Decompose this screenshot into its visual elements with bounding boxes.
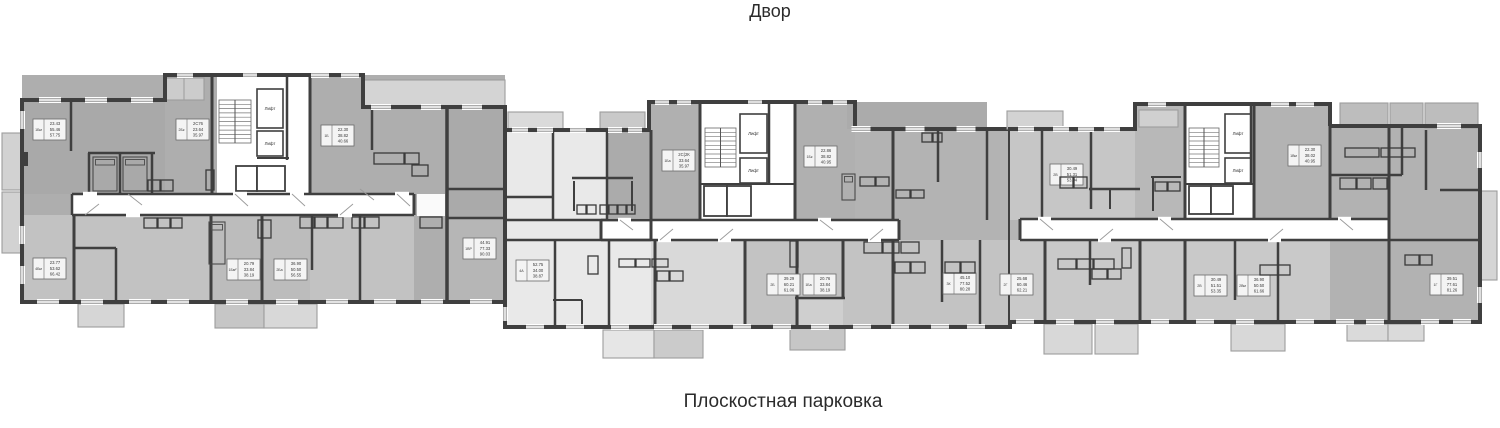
svg-text:25.68: 25.68 xyxy=(1017,276,1028,281)
svg-text:53.04: 53.04 xyxy=(1067,178,1078,183)
svg-text:1Ба: 1Ба xyxy=(664,159,670,163)
svg-text:36.90: 36.90 xyxy=(291,261,302,266)
svg-text:Лифт: Лифт xyxy=(265,106,276,111)
svg-text:1Вм: 1Вм xyxy=(1290,154,1297,158)
svg-text:61.66: 61.66 xyxy=(1254,289,1265,294)
svg-text:33.84: 33.84 xyxy=(244,267,255,272)
svg-text:52.75: 52.75 xyxy=(533,262,544,267)
svg-text:77.52: 77.52 xyxy=(960,281,971,286)
svg-text:56.55: 56.55 xyxy=(291,273,302,278)
svg-text:60.21: 60.21 xyxy=(784,282,795,287)
svg-text:2Б: 2Б xyxy=(770,283,775,287)
svg-text:1Бк: 1Бк xyxy=(807,155,813,159)
svg-text:Лифт: Лифт xyxy=(265,141,276,146)
svg-text:51.51: 51.51 xyxy=(1211,283,1222,288)
svg-text:1Г: 1Г xyxy=(1434,283,1438,287)
svg-text:35.97: 35.97 xyxy=(193,133,204,138)
svg-text:2Ба: 2Ба xyxy=(276,268,282,272)
svg-text:22.30: 22.30 xyxy=(1305,147,1316,152)
svg-text:57.75: 57.75 xyxy=(50,133,61,138)
svg-text:55.46: 55.46 xyxy=(50,127,61,132)
svg-text:1Ба: 1Ба xyxy=(805,283,811,287)
svg-text:2Вм: 2Вм xyxy=(1239,284,1246,288)
svg-text:Лифт: Лифт xyxy=(1233,168,1244,173)
svg-text:77.61: 77.61 xyxy=(1447,282,1458,287)
svg-text:50.50: 50.50 xyxy=(1254,283,1265,288)
svg-text:62.21: 62.21 xyxy=(1017,288,1028,293)
svg-text:38.02: 38.02 xyxy=(1305,153,1316,158)
svg-text:40.95: 40.95 xyxy=(821,160,832,165)
svg-text:45.10: 45.10 xyxy=(960,275,971,280)
svg-text:39.29: 39.29 xyxy=(784,276,795,281)
svg-text:1Б: 1Б xyxy=(324,134,329,138)
svg-text:33.84: 33.84 xyxy=(820,282,831,287)
svg-text:4Бм: 4Бм xyxy=(35,267,42,271)
svg-text:53.62: 53.62 xyxy=(50,266,61,271)
svg-text:61.06: 61.06 xyxy=(784,288,795,293)
svg-text:66.42: 66.42 xyxy=(50,272,61,277)
svg-text:22.30: 22.30 xyxy=(338,127,349,132)
svg-text:23.64: 23.64 xyxy=(193,127,204,132)
svg-text:33.64: 33.64 xyxy=(679,158,690,163)
svg-text:Лифт: Лифт xyxy=(748,168,759,173)
svg-text:1ВР: 1ВР xyxy=(465,247,472,251)
svg-text:22.86: 22.86 xyxy=(821,148,832,153)
svg-text:53.35: 53.35 xyxy=(1211,289,1222,294)
svg-text:36.90: 36.90 xyxy=(1254,277,1265,282)
svg-text:77.33: 77.33 xyxy=(480,246,491,251)
svg-text:30.49: 30.49 xyxy=(1067,166,1078,171)
svg-text:1Бм²: 1Бм² xyxy=(228,268,237,272)
svg-text:30.49: 30.49 xyxy=(1211,277,1222,282)
svg-text:2В: 2В xyxy=(1053,173,1058,177)
svg-text:34.00: 34.00 xyxy=(533,268,544,273)
svg-text:2С(2К: 2С(2К xyxy=(678,152,690,157)
svg-text:23.43: 23.43 xyxy=(50,121,61,126)
svg-text:2Бк: 2Бк xyxy=(179,128,185,132)
svg-text:60.46: 60.46 xyxy=(1017,282,1028,287)
svg-text:38.82: 38.82 xyxy=(821,154,832,159)
svg-text:Двор: Двор xyxy=(749,1,791,21)
svg-text:35.97: 35.97 xyxy=(679,164,690,169)
svg-text:38.87: 38.87 xyxy=(533,274,544,279)
svg-text:Лифт: Лифт xyxy=(748,131,759,136)
svg-text:44.91: 44.91 xyxy=(480,240,491,245)
svg-text:38.19: 38.19 xyxy=(244,273,255,278)
svg-text:40.66: 40.66 xyxy=(338,139,349,144)
svg-text:38.19: 38.19 xyxy=(820,288,831,293)
svg-text:50.50: 50.50 xyxy=(291,267,302,272)
svg-text:2В: 2В xyxy=(1197,284,1202,288)
svg-text:4А: 4А xyxy=(519,269,524,273)
svg-text:Плоскостная парковка: Плоскостная парковка xyxy=(684,391,883,412)
svg-text:20.79: 20.79 xyxy=(244,261,255,266)
svg-text:38.82: 38.82 xyxy=(338,133,349,138)
svg-text:1Бм: 1Бм xyxy=(35,128,42,132)
svg-text:Лифт: Лифт xyxy=(1233,131,1244,136)
svg-text:81.26: 81.26 xyxy=(1447,288,1458,293)
svg-text:2Г: 2Г xyxy=(1004,283,1008,287)
svg-text:51.31: 51.31 xyxy=(1067,172,1078,177)
svg-text:39.51: 39.51 xyxy=(1447,276,1458,281)
svg-text:20.76: 20.76 xyxy=(820,276,831,281)
svg-text:23.77: 23.77 xyxy=(50,260,61,265)
svg-text:40.95: 40.95 xyxy=(1305,159,1316,164)
svg-text:2С76: 2С76 xyxy=(193,121,204,126)
svg-text:80.28: 80.28 xyxy=(960,287,971,292)
svg-text:90.03: 90.03 xyxy=(480,252,491,257)
